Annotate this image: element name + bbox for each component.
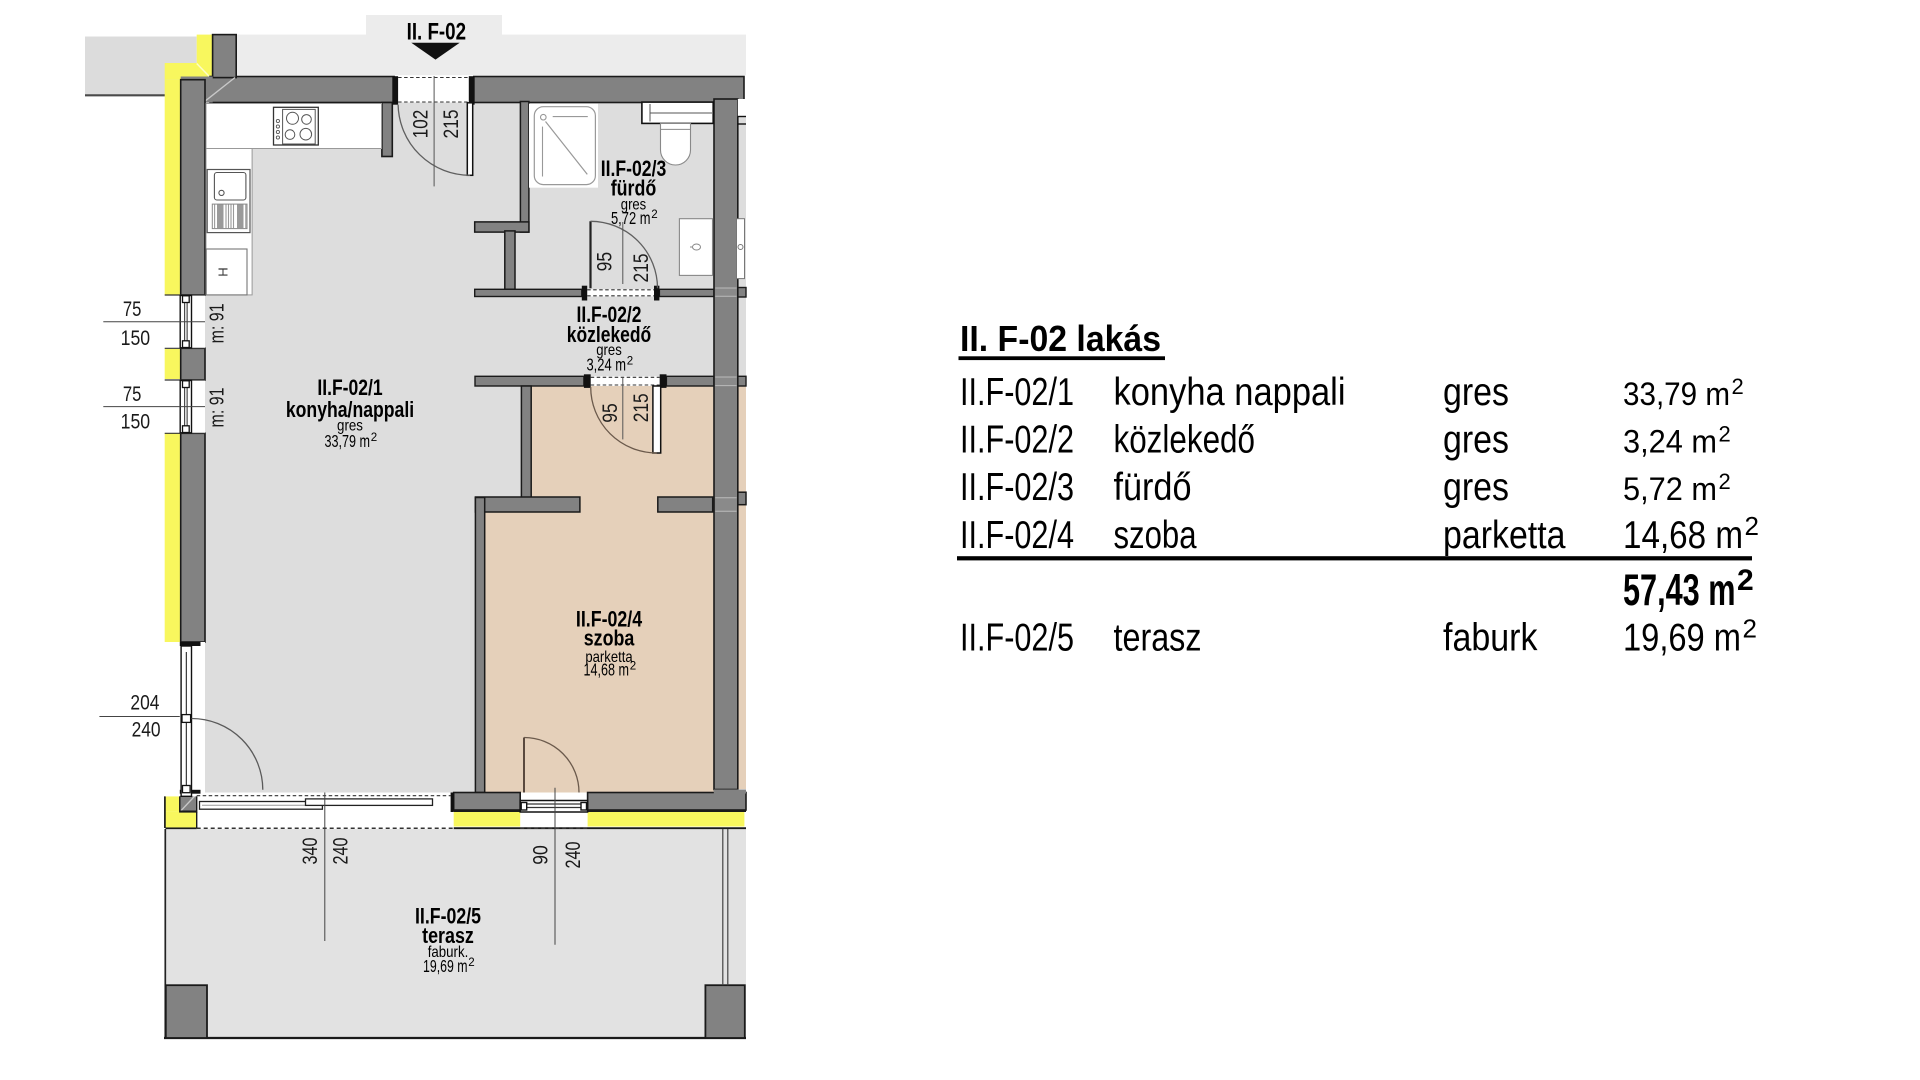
svg-text:2: 2 bbox=[1737, 564, 1754, 597]
svg-text:II.F-02/3: II.F-02/3 bbox=[960, 466, 1074, 509]
svg-text:m: 91: m: 91 bbox=[205, 303, 228, 343]
svg-text:95: 95 bbox=[594, 252, 617, 272]
svg-text:33,79 m: 33,79 m bbox=[325, 431, 371, 451]
svg-text:102: 102 bbox=[410, 110, 433, 139]
svg-text:II.F-02/1: II.F-02/1 bbox=[960, 371, 1074, 414]
svg-text:2: 2 bbox=[630, 660, 636, 672]
svg-text:14,68 m: 14,68 m bbox=[584, 659, 630, 679]
svg-text:75: 75 bbox=[123, 298, 142, 321]
svg-text:215: 215 bbox=[630, 393, 653, 422]
svg-text:gres: gres bbox=[1443, 466, 1509, 509]
svg-text:57,43 m: 57,43 m bbox=[1623, 566, 1736, 615]
svg-text:5,72 m: 5,72 m bbox=[611, 208, 651, 228]
svg-text:2: 2 bbox=[1732, 374, 1744, 399]
svg-text:19,69 m: 19,69 m bbox=[423, 956, 468, 976]
svg-text:90: 90 bbox=[529, 845, 552, 865]
svg-text:2: 2 bbox=[468, 957, 474, 969]
svg-text:75: 75 bbox=[123, 383, 142, 406]
svg-text:215: 215 bbox=[440, 110, 463, 139]
svg-text:240: 240 bbox=[562, 842, 585, 869]
svg-text:33,79 m: 33,79 m bbox=[1623, 376, 1730, 412]
svg-text:150: 150 bbox=[121, 410, 151, 433]
svg-text:gres: gres bbox=[1443, 371, 1509, 414]
svg-text:215: 215 bbox=[630, 254, 653, 283]
svg-text:204: 204 bbox=[130, 691, 159, 714]
svg-text:2: 2 bbox=[651, 209, 657, 221]
svg-text:parketta: parketta bbox=[1443, 514, 1566, 557]
svg-text:340: 340 bbox=[299, 838, 322, 865]
svg-text:2: 2 bbox=[627, 355, 633, 367]
svg-text:II. F-02: II. F-02 bbox=[407, 18, 466, 45]
svg-text:terasz: terasz bbox=[1114, 617, 1202, 660]
svg-text:2: 2 bbox=[1719, 469, 1731, 494]
svg-text:240: 240 bbox=[132, 719, 161, 742]
svg-text:3,24 m: 3,24 m bbox=[1623, 424, 1717, 460]
svg-text:2: 2 bbox=[1743, 614, 1757, 644]
svg-text:II.F-02/4: II.F-02/4 bbox=[960, 514, 1074, 557]
svg-text:faburk: faburk bbox=[1443, 617, 1538, 660]
svg-text:II. F-02 lakás: II. F-02 lakás bbox=[960, 318, 1161, 359]
svg-text:gres: gres bbox=[1443, 419, 1509, 462]
svg-text:közlekedő: közlekedő bbox=[1114, 419, 1256, 462]
svg-text:II.F-02/5: II.F-02/5 bbox=[960, 617, 1074, 660]
svg-text:2: 2 bbox=[1719, 422, 1731, 447]
svg-text:3,24 m: 3,24 m bbox=[587, 354, 627, 374]
svg-text:95: 95 bbox=[599, 403, 622, 423]
svg-text:150: 150 bbox=[121, 327, 151, 350]
svg-text:2: 2 bbox=[371, 432, 377, 444]
svg-text:szoba: szoba bbox=[584, 626, 635, 651]
svg-text:2: 2 bbox=[1745, 511, 1759, 541]
svg-text:m: 91: m: 91 bbox=[205, 388, 228, 428]
svg-text:14,68 m: 14,68 m bbox=[1623, 514, 1743, 557]
svg-text:II.F-02/2: II.F-02/2 bbox=[960, 419, 1074, 462]
svg-text:240: 240 bbox=[329, 838, 352, 865]
svg-text:szoba: szoba bbox=[1114, 514, 1197, 557]
svg-text:H: H bbox=[216, 267, 231, 276]
svg-text:fürdő: fürdő bbox=[1114, 466, 1192, 509]
svg-text:19,69 m: 19,69 m bbox=[1623, 617, 1741, 660]
svg-text:5,72 m: 5,72 m bbox=[1623, 471, 1717, 507]
svg-text:konyha nappali: konyha nappali bbox=[1114, 371, 1346, 414]
